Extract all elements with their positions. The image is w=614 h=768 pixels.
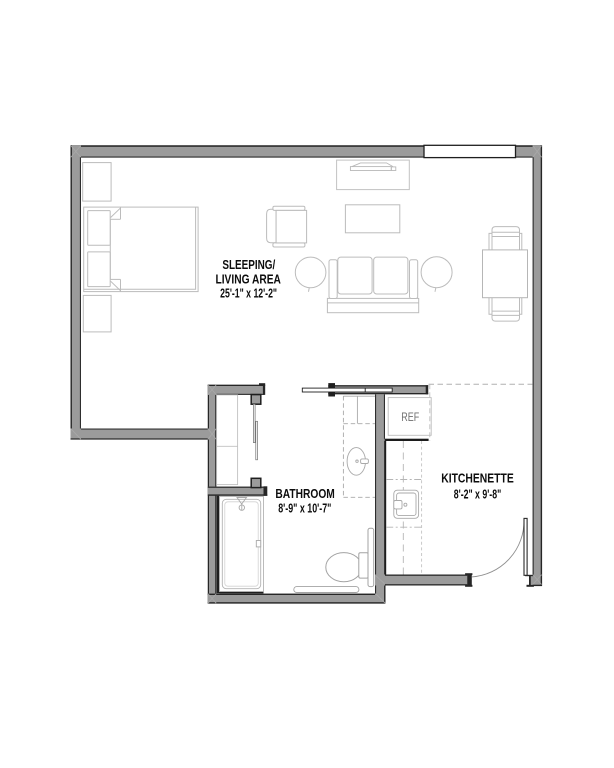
svg-text:BATHROOM: BATHROOM <box>275 486 335 502</box>
svg-text:25'-1" x 12'-2": 25'-1" x 12'-2" <box>220 287 277 301</box>
svg-text:8'-2" x 9'-8": 8'-2" x 9'-8" <box>454 488 501 502</box>
svg-text:8'-9" x 10'-7": 8'-9" x 10'-7" <box>278 502 331 516</box>
svg-text:REF: REF <box>401 411 419 425</box>
svg-text:KITCHENETTE: KITCHENETTE <box>441 470 514 486</box>
svg-text:LIVING AREA: LIVING AREA <box>215 271 281 287</box>
